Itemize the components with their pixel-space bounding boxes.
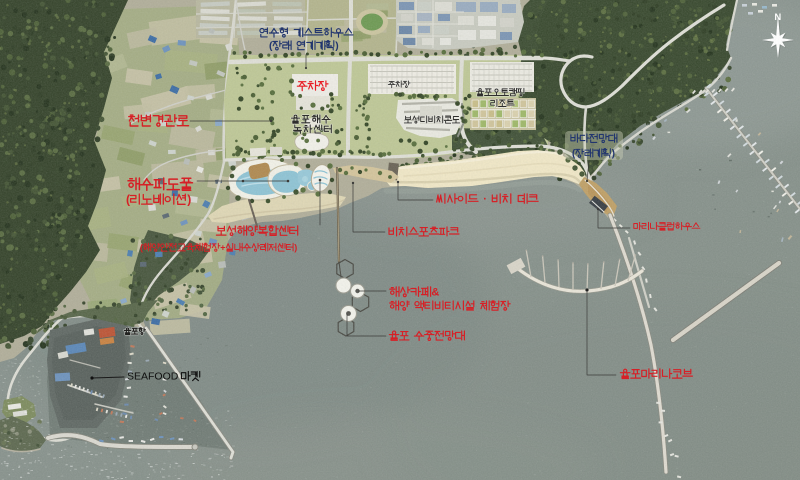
svg-text:(: ( xyxy=(140,242,143,252)
svg-text:+: + xyxy=(220,242,225,252)
svg-text:): ) xyxy=(187,192,191,206)
svg-text:SEAFOOD: SEAFOOD xyxy=(127,371,179,383)
svg-text:(: ( xyxy=(269,41,273,52)
svg-text:): ) xyxy=(612,148,615,159)
svg-text:): ) xyxy=(294,242,297,252)
svg-text:&: & xyxy=(431,287,439,299)
svg-text:·: · xyxy=(483,194,487,206)
svg-text:): ) xyxy=(335,41,338,52)
